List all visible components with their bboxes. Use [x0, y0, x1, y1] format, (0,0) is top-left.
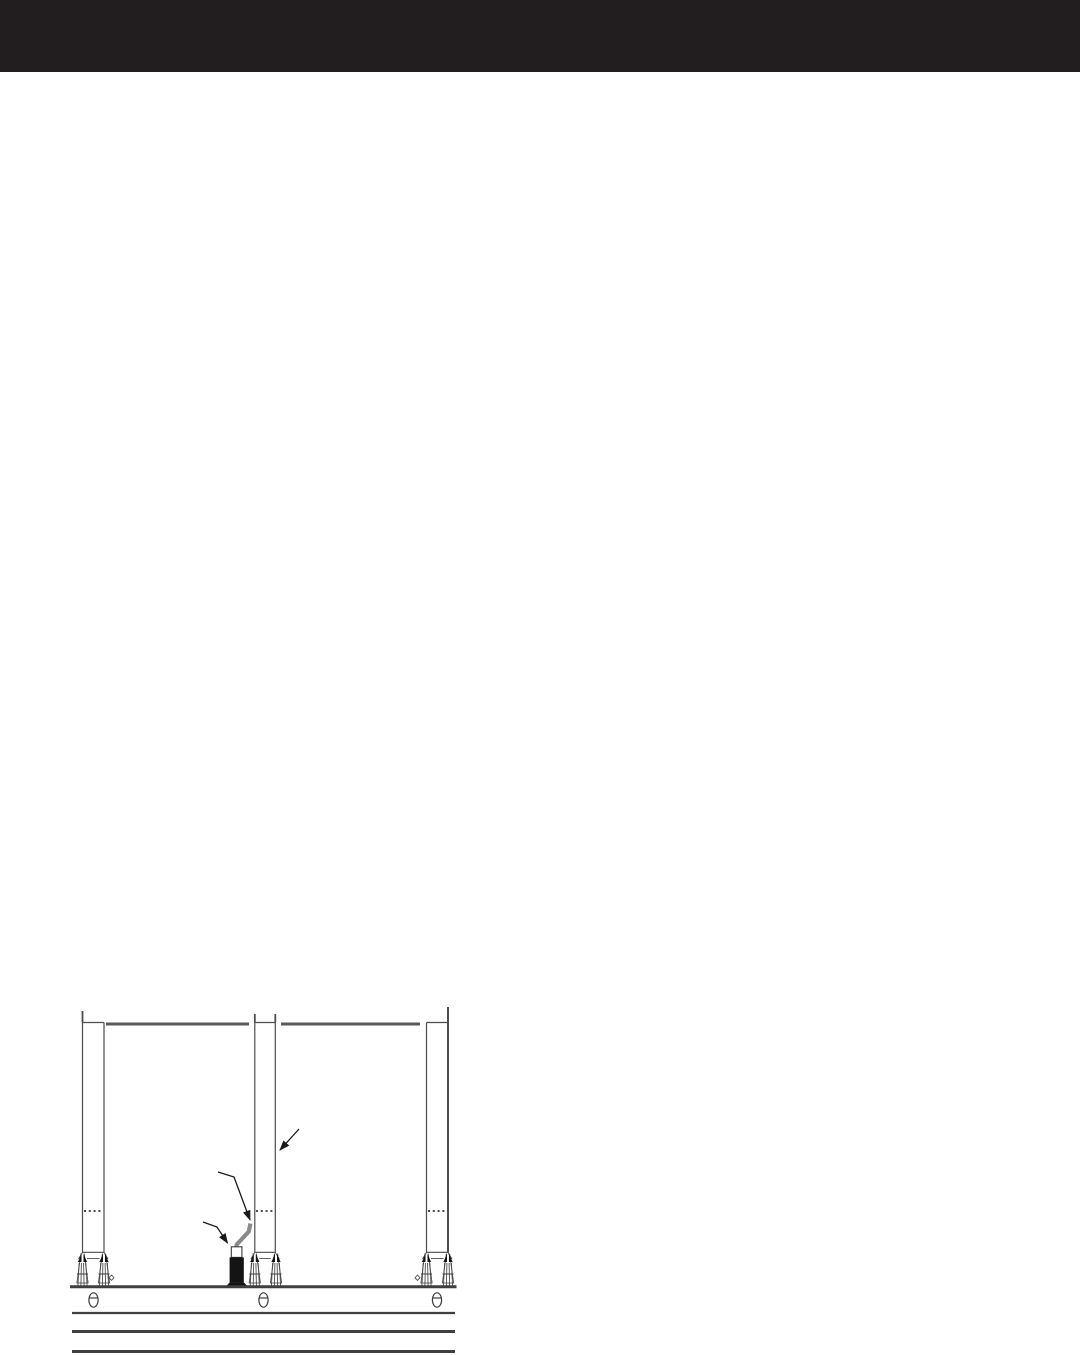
post-left	[83, 1011, 105, 1253]
document-page	[0, 0, 1080, 1355]
header-band	[0, 0, 1080, 72]
installation-figure	[60, 1000, 470, 1355]
diamond-marker-right	[415, 1275, 420, 1280]
floor-anchors	[89, 1293, 442, 1307]
base-flares	[79, 1253, 453, 1260]
post-center	[255, 1014, 276, 1253]
floor-feed-device	[226, 1224, 250, 1287]
device-collar	[231, 1247, 242, 1258]
diamond-marker-left	[109, 1275, 114, 1280]
arrow-floor-feed	[203, 1222, 228, 1243]
arrow-conduit	[218, 1172, 250, 1220]
lower-rules	[72, 1313, 455, 1352]
arrow-panel-post	[280, 1129, 299, 1150]
post-right	[427, 1007, 449, 1253]
diamond-markers	[109, 1275, 420, 1280]
device-body	[230, 1257, 244, 1282]
installation-figure-svg	[60, 1000, 470, 1355]
